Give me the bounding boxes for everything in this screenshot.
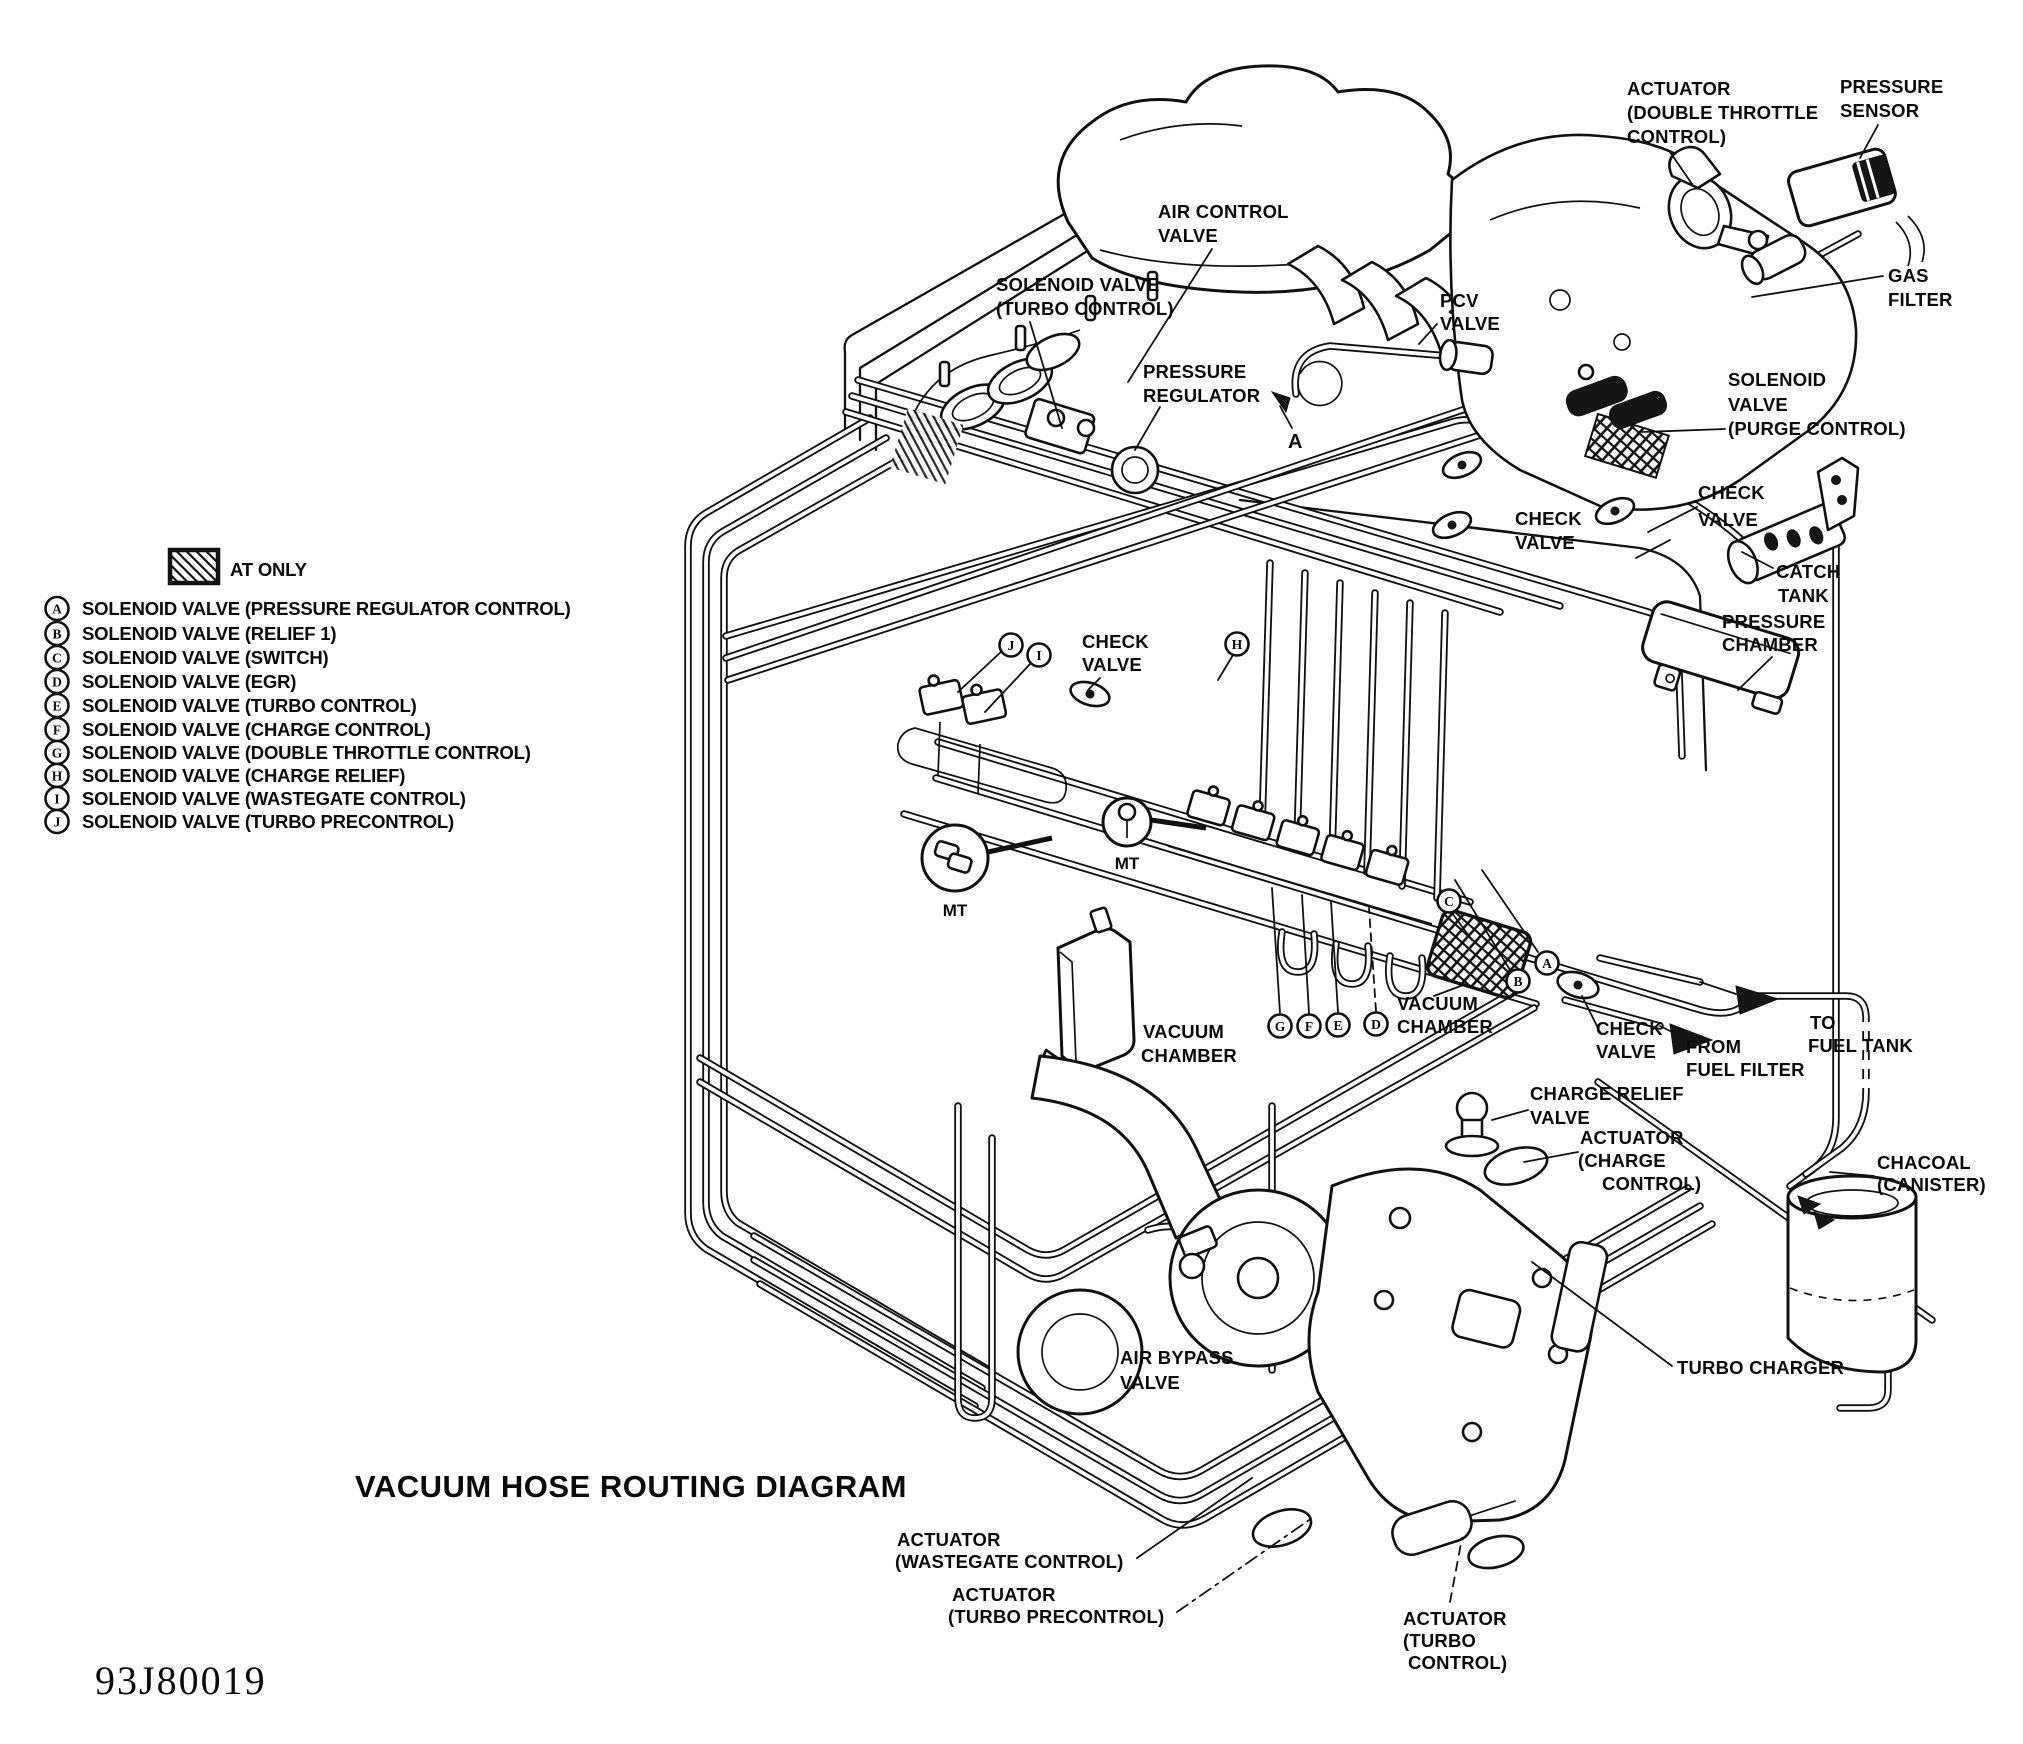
svg-text:VACUUM: VACUUM — [1143, 1021, 1224, 1042]
legend-item-d: DSOLENOID VALVE (EGR) — [46, 670, 297, 693]
svg-text:ACTUATOR: ACTUATOR — [952, 1584, 1056, 1605]
callout-actuator-wastegate-control: ACTUATOR (WASTEGATE CONTROL) — [895, 1529, 1124, 1572]
svg-text:(DOUBLE THROTTLE: (DOUBLE THROTTLE — [1627, 102, 1818, 123]
figure-part-number: 93J80019 — [95, 1658, 267, 1703]
callout-catch-tank: CATCH TANK — [1776, 561, 1840, 606]
svg-text:SOLENOID VALVE (TURBO CONTROL): SOLENOID VALVE (TURBO CONTROL) — [82, 695, 417, 716]
circled-marker-j: J — [1000, 634, 1023, 657]
svg-text:PRESSURE: PRESSURE — [1143, 361, 1246, 382]
svg-text:B: B — [52, 627, 61, 642]
svg-text:FUEL TANK: FUEL TANK — [1808, 1035, 1913, 1056]
svg-text:ACTUATOR: ACTUATOR — [1403, 1608, 1507, 1629]
circled-marker-f: F — [1298, 1015, 1321, 1038]
callout-actuator-double-throttle: ACTUATOR (DOUBLE THROTTLE CONTROL) — [1627, 78, 1818, 147]
circled-marker-d: D — [1365, 1013, 1388, 1036]
circled-marker-h: H — [1226, 633, 1249, 656]
svg-text:SOLENOID VALVE (TURBO PRECONTR: SOLENOID VALVE (TURBO PRECONTROL) — [82, 811, 454, 832]
callout-vacuum-chamber-left: VACUUM CHAMBER — [1141, 1021, 1237, 1066]
callout-from-fuel-filter: FROM FUEL FILTER — [1686, 1036, 1805, 1080]
fuel-line-arrows — [1565, 958, 1778, 1054]
svg-text:F: F — [1305, 1019, 1313, 1034]
svg-text:CHAMBER: CHAMBER — [1722, 634, 1818, 655]
callout-check-valve-upper-right: CHECK VALVE — [1698, 482, 1765, 530]
circled-marker-i: I — [1028, 644, 1051, 667]
svg-text:SOLENOID VALVE (EGR): SOLENOID VALVE (EGR) — [82, 671, 296, 692]
callout-check-valve-upper-mid: CHECK VALVE — [1515, 508, 1582, 553]
svg-text:(CANISTER): (CANISTER) — [1877, 1174, 1986, 1195]
callout-check-valve-lower: CHECK VALVE — [1596, 1018, 1663, 1062]
svg-text:SOLENOID VALVE (PRESSURE REGUL: SOLENOID VALVE (PRESSURE REGULATOR CONTR… — [82, 598, 571, 619]
svg-text:CHACOAL: CHACOAL — [1877, 1152, 1971, 1173]
callout-check-valve-center: CHECK VALVE — [1082, 631, 1149, 675]
svg-text:(TURBO PRECONTROL): (TURBO PRECONTROL) — [948, 1606, 1164, 1627]
callout-turbo-charger: TURBO CHARGER — [1677, 1357, 1844, 1378]
svg-text:G: G — [52, 746, 63, 761]
svg-text:C: C — [52, 651, 62, 666]
legend-item-h: HSOLENOID VALVE (CHARGE RELIEF) — [46, 764, 406, 787]
svg-text:J: J — [54, 815, 61, 830]
circled-marker-c: C — [1438, 890, 1461, 913]
legend-item-j: JSOLENOID VALVE (TURBO PRECONTROL) — [46, 810, 455, 833]
callout-pressure-sensor: PRESSURE SENSOR — [1840, 76, 1943, 121]
svg-text:CHECK: CHECK — [1082, 631, 1149, 652]
svg-text:CONTROL): CONTROL) — [1408, 1652, 1507, 1673]
svg-text:VALVE: VALVE — [1120, 1372, 1180, 1393]
callout-gas-filter: GAS FILTER — [1888, 265, 1953, 310]
charge-relief-valve-drawing — [1446, 1093, 1498, 1156]
svg-text:VACUUM: VACUUM — [1397, 993, 1478, 1014]
callout-pressure-regulator: PRESSURE REGULATOR — [1143, 361, 1260, 406]
svg-text:(WASTEGATE CONTROL): (WASTEGATE CONTROL) — [895, 1551, 1124, 1572]
svg-text:REGULATOR: REGULATOR — [1143, 385, 1260, 406]
svg-text:CHECK: CHECK — [1515, 508, 1582, 529]
svg-text:A: A — [1542, 956, 1552, 971]
svg-text:SOLENOID VALVE (CHARGE RELIEF): SOLENOID VALVE (CHARGE RELIEF) — [82, 765, 405, 786]
callout-actuator-turbo-precontrol: ACTUATOR (TURBO PRECONTROL) — [948, 1584, 1164, 1627]
svg-text:CATCH: CATCH — [1776, 561, 1840, 582]
legend-item-f: FSOLENOID VALVE (CHARGE CONTROL) — [46, 718, 431, 741]
svg-text:TO: TO — [1810, 1012, 1836, 1033]
point-a-label: A — [1288, 431, 1302, 453]
svg-text:G: G — [1275, 1019, 1286, 1034]
svg-text:ACTUATOR: ACTUATOR — [1627, 78, 1731, 99]
legend-item-i: ISOLENOID VALVE (WASTEGATE CONTROL) — [46, 787, 466, 810]
svg-text:VALVE: VALVE — [1530, 1107, 1590, 1128]
svg-text:VALVE: VALVE — [1082, 654, 1142, 675]
svg-text:E: E — [52, 699, 61, 714]
svg-text:FROM: FROM — [1686, 1036, 1741, 1057]
svg-text:CHAMBER: CHAMBER — [1397, 1016, 1493, 1037]
callout-charge-relief-valve: CHARGE RELIEF VALVE — [1530, 1083, 1684, 1128]
circled-marker-b: B — [1507, 970, 1530, 993]
svg-text:TURBO CHARGER: TURBO CHARGER — [1677, 1357, 1844, 1378]
svg-text:SOLENOID VALVE (CHARGE CONTROL: SOLENOID VALVE (CHARGE CONTROL) — [82, 719, 431, 740]
svg-text:ACTUATOR: ACTUATOR — [897, 1529, 1001, 1550]
svg-text:(PURGE CONTROL): (PURGE CONTROL) — [1728, 418, 1906, 439]
at-only-label: AT ONLY — [230, 559, 308, 580]
svg-text:PRESSURE: PRESSURE — [1722, 611, 1825, 632]
mt-label-center: MT — [1115, 854, 1140, 873]
svg-text:I: I — [54, 792, 59, 807]
svg-text:CHAMBER: CHAMBER — [1141, 1045, 1237, 1066]
svg-text:B: B — [1513, 974, 1522, 989]
svg-text:SOLENOID VALVE: SOLENOID VALVE — [996, 274, 1160, 295]
svg-text:ACTUATOR: ACTUATOR — [1580, 1127, 1684, 1148]
svg-text:H: H — [1232, 637, 1243, 652]
callout-actuator-turbo-control: ACTUATOR (TURBO CONTROL) — [1403, 1608, 1507, 1673]
legend: AT ONLY ASOLENOID VALVE (PRESSURE REGULA… — [46, 550, 571, 833]
solenoid-j-i-drawing — [917, 662, 1007, 794]
svg-text:CHECK: CHECK — [1698, 482, 1765, 503]
svg-text:H: H — [52, 769, 63, 784]
svg-text:PRESSURE: PRESSURE — [1840, 76, 1943, 97]
svg-text:SENSOR: SENSOR — [1840, 100, 1919, 121]
callout-actuator-charge-control: ACTUATOR (CHARGE CONTROL) — [1578, 1127, 1701, 1194]
svg-text:CHECK: CHECK — [1596, 1018, 1663, 1039]
circled-marker-e: E — [1327, 1014, 1350, 1037]
svg-text:CHARGE RELIEF: CHARGE RELIEF — [1530, 1083, 1684, 1104]
svg-text:FUEL FILTER: FUEL FILTER — [1686, 1059, 1805, 1080]
legend-item-b: BSOLENOID VALVE (RELIEF 1) — [46, 622, 337, 645]
svg-text:SOLENOID VALVE (RELIEF 1): SOLENOID VALVE (RELIEF 1) — [82, 623, 336, 644]
svg-text:F: F — [53, 723, 61, 738]
at-only-swatch — [170, 550, 218, 583]
page-title: VACUUM HOSE ROUTING DIAGRAM — [355, 1469, 907, 1504]
svg-text:C: C — [1444, 894, 1454, 909]
check-valve-components — [1068, 447, 1638, 1003]
legend-item-e: ESOLENOID VALVE (TURBO CONTROL) — [46, 694, 417, 717]
svg-text:AIR BYPASS: AIR BYPASS — [1120, 1347, 1234, 1368]
svg-text:I: I — [1036, 648, 1041, 663]
callout-to-fuel-tank: TO FUEL TANK — [1808, 1012, 1913, 1056]
svg-text:CONTROL): CONTROL) — [1602, 1173, 1701, 1194]
svg-text:E: E — [1333, 1018, 1342, 1033]
svg-text:SOLENOID VALVE (DOUBLE THROTTL: SOLENOID VALVE (DOUBLE THROTTLE CONTROL) — [82, 742, 531, 763]
svg-text:CONTROL): CONTROL) — [1627, 126, 1726, 147]
svg-text:D: D — [1371, 1017, 1381, 1032]
svg-text:PCV: PCV — [1440, 290, 1479, 311]
callout-chacoal-canister: CHACOAL (CANISTER) — [1877, 1152, 1986, 1195]
svg-text:AIR CONTROL: AIR CONTROL — [1158, 201, 1289, 222]
vacuum-hose-routing-diagram-page: J I H G F E D C B A MT MT A ACTUATOR (DO… — [0, 0, 2023, 1744]
svg-text:VALVE: VALVE — [1158, 225, 1218, 246]
legend-item-c: CSOLENOID VALVE (SWITCH) — [46, 646, 329, 669]
solenoid-turbo-control-drawing — [1024, 398, 1095, 454]
svg-text:VALVE: VALVE — [1698, 509, 1758, 530]
svg-text:GAS: GAS — [1888, 265, 1929, 286]
svg-text:SOLENOID VALVE (WASTEGATE CONT: SOLENOID VALVE (WASTEGATE CONTROL) — [82, 788, 466, 809]
svg-text:J: J — [1008, 638, 1015, 653]
legend-item-g: GSOLENOID VALVE (DOUBLE THROTTLE CONTROL… — [46, 741, 531, 764]
hose-center-rails — [904, 742, 1740, 1013]
circled-marker-a: A — [1536, 952, 1559, 975]
svg-text:(CHARGE: (CHARGE — [1578, 1150, 1666, 1171]
svg-text:(TURBO CONTROL): (TURBO CONTROL) — [996, 298, 1174, 319]
svg-text:(TURBO: (TURBO — [1403, 1630, 1476, 1651]
mt-label-left: MT — [943, 901, 968, 920]
svg-text:VALVE: VALVE — [1440, 313, 1500, 334]
svg-text:A: A — [52, 602, 62, 617]
circled-marker-g: G — [1269, 1015, 1292, 1038]
legend-item-a: ASOLENOID VALVE (PRESSURE REGULATOR CONT… — [46, 597, 571, 620]
svg-text:FILTER: FILTER — [1888, 289, 1953, 310]
svg-text:SOLENOID VALVE (SWITCH): SOLENOID VALVE (SWITCH) — [82, 647, 329, 668]
svg-text:VALVE: VALVE — [1728, 394, 1788, 415]
svg-text:TANK: TANK — [1778, 585, 1829, 606]
svg-text:SOLENOID: SOLENOID — [1728, 369, 1826, 390]
charcoal-canister-drawing — [1788, 1176, 1916, 1372]
svg-text:D: D — [52, 675, 62, 690]
svg-text:VALVE: VALVE — [1515, 532, 1575, 553]
svg-text:VALVE: VALVE — [1596, 1041, 1656, 1062]
